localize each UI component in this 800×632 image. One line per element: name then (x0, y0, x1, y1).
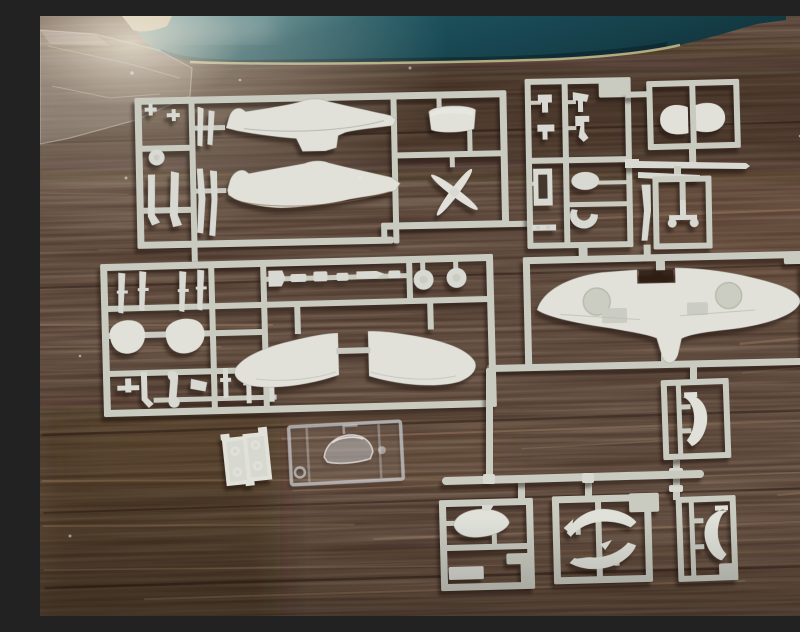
lighting-overlay (40, 16, 800, 616)
photo-model-kit-sprues: Photograph of an aircraft plastic scale-… (40, 16, 800, 616)
scene-canvas (40, 16, 800, 616)
